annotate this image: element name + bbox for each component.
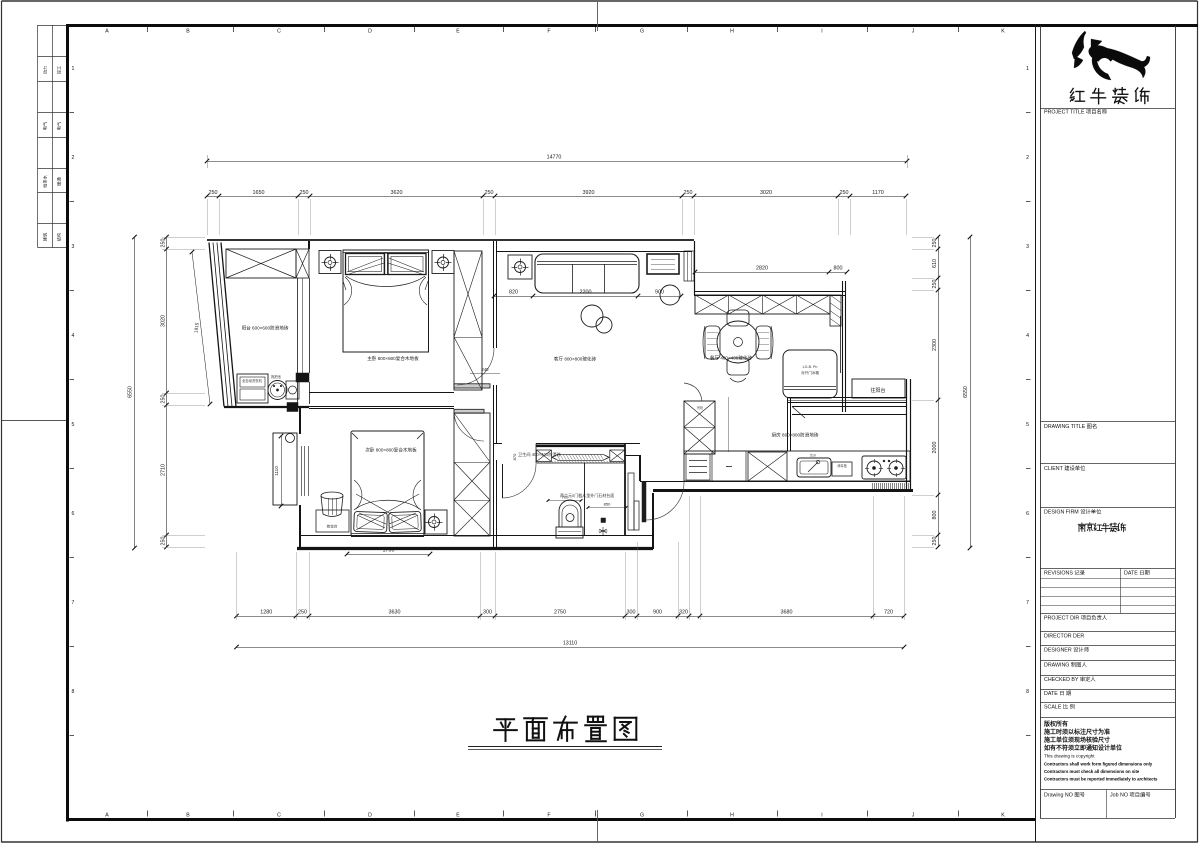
svg-text:竣工: 竣工	[56, 66, 63, 74]
svg-text:1650: 1650	[253, 190, 265, 196]
svg-text:720: 720	[884, 610, 893, 616]
svg-text:850: 850	[604, 502, 611, 507]
svg-text:320: 320	[679, 610, 688, 616]
svg-text:G: G	[640, 813, 644, 819]
svg-text:DRAWING TITLE 图名: DRAWING TITLE 图名	[1044, 422, 1097, 430]
svg-text:1: 1	[72, 66, 75, 72]
svg-text:A: A	[105, 29, 109, 35]
svg-text:3620: 3620	[391, 190, 403, 196]
svg-text:1700: 1700	[383, 548, 395, 554]
svg-text:K: K	[1001, 813, 1005, 819]
svg-text:阳台 600×600防滑地砖: 阳台 600×600防滑地砖	[242, 325, 289, 332]
svg-text:D: D	[368, 813, 372, 819]
svg-text:DATE 日 期: DATE 日 期	[1044, 690, 1071, 697]
svg-text:全自动洗衣机: 全自动洗衣机	[242, 378, 262, 383]
svg-text:施工单位须现场核验尺寸: 施工单位须现场核验尺寸	[1044, 736, 1110, 744]
svg-text:C: C	[277, 29, 281, 35]
svg-text:REVISIONS 记录: REVISIONS 记录	[1044, 569, 1086, 577]
svg-text:1170: 1170	[872, 190, 884, 196]
svg-text:I: I	[821, 29, 822, 35]
svg-text:客厅 800×800玻化砖: 客厅 800×800玻化砖	[554, 356, 597, 363]
svg-text:250: 250	[160, 395, 166, 404]
svg-text:4: 4	[1026, 333, 1029, 339]
svg-text:拖把池: 拖把池	[271, 374, 281, 379]
svg-text:J: J	[912, 813, 915, 819]
svg-text:2750: 2750	[554, 610, 566, 616]
svg-text:7: 7	[72, 600, 75, 606]
svg-text:6550: 6550	[128, 386, 134, 398]
svg-text:结构: 结构	[56, 233, 63, 241]
svg-text:Contractors must be reported i: Contractors must be reported immediately…	[1044, 777, 1158, 782]
svg-text:次卧 800×800复合木地板: 次卧 800×800复合木地板	[365, 447, 417, 454]
svg-text:2300: 2300	[932, 339, 938, 351]
svg-text:3920: 3920	[583, 190, 595, 196]
svg-text:1110: 1110	[274, 466, 279, 476]
svg-text:This drawing is copyright: This drawing is copyright	[1044, 754, 1095, 759]
svg-text:Drawing NO 图号: Drawing NO 图号	[1044, 791, 1085, 799]
svg-text:A: A	[105, 813, 109, 819]
svg-text:B: B	[186, 813, 190, 819]
svg-text:250: 250	[160, 537, 166, 546]
svg-text:8: 8	[1026, 689, 1029, 695]
svg-text:对开门冰箱: 对开门冰箱	[801, 370, 819, 375]
svg-text:3630: 3630	[389, 610, 401, 616]
svg-text:300: 300	[627, 610, 636, 616]
svg-text:3020: 3020	[760, 190, 772, 196]
svg-text:6: 6	[72, 511, 75, 517]
svg-text:7: 7	[1026, 600, 1029, 606]
svg-text:施工时须以标注尺寸为准: 施工时须以标注尺寸为准	[1044, 728, 1110, 736]
svg-text:2: 2	[1026, 155, 1029, 161]
svg-text:14770: 14770	[547, 155, 562, 161]
svg-text:800: 800	[834, 266, 843, 272]
svg-text:1280: 1280	[260, 610, 272, 616]
svg-text:版权所有: 版权所有	[1043, 720, 1068, 728]
svg-text:2: 2	[72, 155, 75, 161]
svg-text:G: G	[640, 29, 644, 35]
svg-text:如有不符须立即通知设计单位: 如有不符须立即通知设计单位	[1044, 744, 1122, 752]
svg-text:820: 820	[509, 290, 518, 296]
svg-text:DESIGNER 设计师: DESIGNER 设计师	[1044, 646, 1090, 654]
svg-text:3: 3	[72, 244, 75, 250]
svg-text:5: 5	[1026, 422, 1029, 428]
svg-text:往阳台: 往阳台	[870, 387, 885, 394]
svg-text:电气: 电气	[56, 121, 62, 130]
svg-text:暖通: 暖通	[56, 177, 63, 186]
svg-text:消毒柜: 消毒柜	[837, 463, 847, 468]
svg-text:K: K	[1001, 29, 1005, 35]
svg-text:F: F	[547, 813, 550, 819]
svg-text:电气: 电气	[42, 121, 48, 130]
svg-text:3020: 3020	[160, 315, 166, 327]
svg-text:250: 250	[160, 239, 166, 248]
svg-text:250: 250	[300, 190, 309, 196]
svg-text:CHECKED BY 审定人: CHECKED BY 审定人	[1044, 675, 1096, 683]
svg-text:两个元0门槛从里外门石材台面: 两个元0门槛从里外门石材台面	[560, 492, 614, 498]
svg-text:800: 800	[932, 511, 938, 520]
svg-text:DIRECTOR DER: DIRECTOR DER	[1044, 634, 1084, 640]
svg-text:主卧 800×800复合木地板: 主卧 800×800复合木地板	[367, 355, 419, 362]
svg-text:250: 250	[298, 610, 307, 616]
svg-text:4: 4	[72, 333, 75, 339]
svg-text:DATE 日期: DATE 日期	[1124, 570, 1150, 577]
svg-text:13110: 13110	[563, 641, 577, 647]
svg-text:PROJECT DIR 项目负责人: PROJECT DIR 项目负责人	[1044, 614, 1108, 622]
svg-text:给排水: 给排水	[42, 174, 49, 187]
svg-text:900: 900	[655, 290, 664, 296]
svg-text:梳妆台: 梳妆台	[327, 524, 338, 529]
svg-text:动力: 动力	[42, 66, 49, 74]
svg-text:900: 900	[653, 610, 662, 616]
svg-text:250: 250	[840, 190, 849, 196]
svg-text:PROJECT TITLE 项目名称: PROJECT TITLE 项目名称	[1044, 108, 1108, 116]
svg-text:870: 870	[512, 453, 517, 460]
svg-text:C: C	[277, 813, 281, 819]
svg-text:DRAWING 制图人: DRAWING 制图人	[1044, 661, 1087, 669]
svg-text:510: 510	[810, 454, 816, 458]
svg-text:2710: 2710	[160, 464, 166, 476]
svg-text:300: 300	[483, 610, 492, 616]
svg-text:B: B	[186, 29, 190, 35]
svg-text:5: 5	[72, 422, 75, 428]
svg-text:6550: 6550	[963, 386, 969, 398]
svg-text:建筑: 建筑	[42, 232, 49, 241]
svg-text:Job NO 项目编号: Job NO 项目编号	[1110, 791, 1151, 799]
svg-text:2000: 2000	[932, 442, 938, 454]
svg-text:250: 250	[485, 190, 494, 196]
svg-text:H: H	[730, 813, 734, 819]
svg-text:H: H	[730, 29, 734, 35]
svg-text:J: J	[912, 29, 915, 35]
svg-text:3: 3	[1026, 244, 1029, 250]
svg-text:Contractors shall work form fi: Contractors shall work form figured dime…	[1044, 762, 1153, 767]
svg-text:DESIGN FIRM 设计单位: DESIGN FIRM 设计单位	[1044, 508, 1102, 516]
svg-text:餐厅 400×400玻化砖: 餐厅 400×400玻化砖	[710, 355, 753, 362]
svg-text:CLIENT 建设单位: CLIENT 建设单位	[1044, 464, 1086, 472]
svg-text:吊柜: 吊柜	[697, 405, 704, 410]
svg-text:F: F	[547, 29, 550, 35]
svg-text:卫生间 400×400防滑砖: 卫生间 400×400防滑砖	[518, 451, 561, 458]
svg-text:250: 250	[209, 190, 218, 196]
svg-text:I: I	[821, 813, 822, 819]
svg-text:250: 250	[684, 190, 693, 196]
svg-text:E: E	[456, 813, 460, 819]
svg-text:240: 240	[482, 367, 490, 372]
svg-text:SCALE 比 例: SCALE 比 例	[1044, 703, 1075, 711]
svg-text:E: E	[456, 29, 460, 35]
svg-text:250: 250	[932, 280, 938, 289]
svg-text:厨房 800×800防滑地砖: 厨房 800×800防滑地砖	[772, 432, 819, 439]
svg-text:3680: 3680	[781, 610, 793, 616]
svg-text:250: 250	[932, 537, 938, 546]
svg-text:6: 6	[1026, 511, 1029, 517]
svg-text:LG-B. Pn: LG-B. Pn	[803, 365, 818, 369]
svg-text:250: 250	[932, 239, 938, 248]
svg-text:610: 610	[932, 259, 938, 268]
svg-text:1: 1	[1026, 66, 1029, 72]
svg-text:2820: 2820	[756, 266, 768, 272]
svg-text:Contractors must check all dim: Contractors must check all dimensions on…	[1044, 769, 1140, 774]
svg-text:D: D	[368, 29, 372, 35]
svg-text:8: 8	[72, 689, 75, 695]
